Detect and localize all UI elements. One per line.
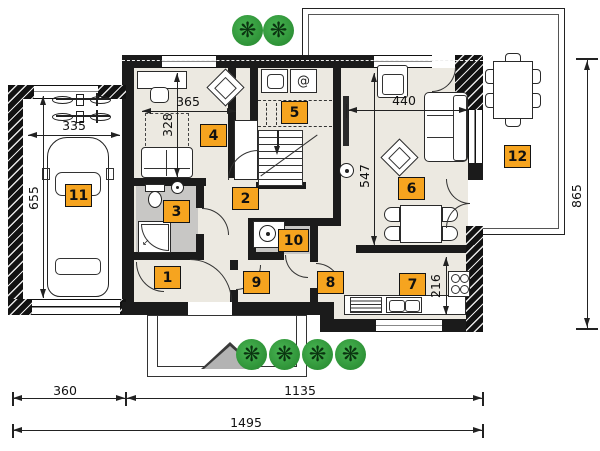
landing-dash <box>266 103 267 125</box>
wall <box>196 182 204 208</box>
dim-room4-depth: 328 <box>160 100 175 150</box>
wall <box>356 245 466 253</box>
room-label-5: 5 <box>281 101 308 124</box>
terrace-door-opening <box>468 180 483 226</box>
dim-line <box>43 96 44 298</box>
floor-plan: ↙ @ <box>0 0 600 451</box>
dim-arrow <box>40 289 46 298</box>
shower-arrow: ↙ <box>142 238 150 248</box>
dim-line <box>177 73 178 177</box>
dim-line <box>28 135 120 136</box>
dim-arrow <box>174 73 180 82</box>
window <box>376 319 442 332</box>
stairs-arrow-line <box>277 130 279 147</box>
washing-machine-icon <box>261 69 288 93</box>
roof-dash-line <box>122 60 483 61</box>
drain-symbol <box>171 181 184 194</box>
washbasin <box>259 225 276 242</box>
room-label-6: 6 <box>398 177 425 200</box>
dim-arrow <box>40 96 46 105</box>
dim-tick <box>482 424 484 438</box>
dim-plot-left: 360 <box>40 383 90 398</box>
dim-line <box>12 430 483 431</box>
terrace-table <box>493 61 533 119</box>
room-label-7: 7 <box>399 273 426 296</box>
terrace-window <box>468 110 483 163</box>
wall <box>310 218 318 262</box>
dim-tick <box>576 58 598 60</box>
room-label-11: 11 <box>65 184 92 207</box>
garage-door <box>32 299 120 315</box>
dining-table <box>400 205 442 243</box>
dim-living-depth: 547 <box>357 150 372 202</box>
dim-arrow <box>348 107 357 113</box>
car-icon <box>47 137 109 297</box>
dim-arrow <box>584 318 590 327</box>
dim-arrow <box>142 108 151 114</box>
dim-arrow <box>227 108 236 114</box>
tree-icon: ❋ <box>263 15 294 46</box>
room-label-3: 3 <box>163 200 190 223</box>
dim-arrow <box>371 236 377 245</box>
dim-arrow <box>116 395 125 401</box>
dryer-icon: @ <box>290 69 317 93</box>
tree-icon: ❋ <box>302 339 333 370</box>
dim-line <box>12 398 483 399</box>
shower: ↙ <box>138 221 171 253</box>
wall <box>134 252 198 260</box>
chair <box>384 207 400 222</box>
chair <box>532 69 541 84</box>
chair <box>485 69 494 84</box>
dim-line <box>142 111 236 112</box>
stove <box>448 271 470 297</box>
room-label-12: 12 <box>504 145 531 168</box>
dim-line <box>348 110 468 111</box>
dim-arrow <box>174 168 180 177</box>
dim-line <box>587 60 588 328</box>
dim-side-depth: 865 <box>569 170 584 222</box>
dim-arrow <box>584 61 590 70</box>
landing-dash <box>276 103 277 125</box>
front-door-opening <box>188 302 232 315</box>
dim-arrow <box>473 395 482 401</box>
room-label-2: 2 <box>232 187 259 210</box>
dim-arrow <box>459 107 468 113</box>
wall <box>468 163 483 180</box>
landing-dash <box>258 126 332 127</box>
dim-arrow <box>371 73 377 82</box>
stairs-arrow <box>274 146 280 155</box>
room-label-8: 8 <box>317 271 344 294</box>
dim-line <box>374 73 375 245</box>
window <box>162 55 216 68</box>
dim-arrow <box>473 427 482 433</box>
room-label-9: 9 <box>243 271 270 294</box>
dim-plot-total: 1495 <box>218 415 274 430</box>
tree-icon: ❋ <box>232 15 263 46</box>
bike-icon <box>52 93 114 106</box>
wall <box>333 68 341 218</box>
chair <box>505 53 521 62</box>
dim-kitchen-depth: 216 <box>428 262 443 310</box>
wall <box>250 68 258 126</box>
kitchen-drawers <box>350 297 382 313</box>
room-label-10: 10 <box>278 229 309 252</box>
room-label-4: 4 <box>200 124 227 147</box>
dim-tick <box>482 392 484 406</box>
dim-garage-depth: 655 <box>26 172 41 224</box>
chimney-symbol <box>339 163 354 178</box>
dryer-glyph: @ <box>297 74 310 89</box>
dim-arrow <box>111 132 120 138</box>
dim-arrow <box>28 132 37 138</box>
dim-arrow <box>443 257 449 266</box>
dim-garage-width: 335 <box>50 118 98 133</box>
tree-icon: ❋ <box>236 339 267 370</box>
sofa <box>424 92 468 162</box>
chair <box>384 226 400 241</box>
room-label-1: 1 <box>154 266 181 289</box>
chair <box>505 118 521 127</box>
dim-plot-right: 1135 <box>272 383 328 398</box>
dim-arrow <box>13 395 22 401</box>
toilet-bowl <box>148 191 162 208</box>
chair <box>485 93 494 108</box>
dim-arrow <box>443 306 449 315</box>
stairs <box>258 130 303 186</box>
dim-tick <box>576 328 598 330</box>
garage-wall <box>8 85 23 315</box>
sofa-small <box>141 147 193 178</box>
chair <box>442 226 458 241</box>
dim-arrow <box>127 395 136 401</box>
dim-living-width: 440 <box>380 93 428 108</box>
kitchen-sink <box>386 297 422 313</box>
chair <box>532 93 541 108</box>
wall <box>466 226 483 245</box>
tree-icon: ❋ <box>269 339 300 370</box>
dim-arrow <box>13 427 22 433</box>
tree-icon: ❋ <box>335 339 366 370</box>
